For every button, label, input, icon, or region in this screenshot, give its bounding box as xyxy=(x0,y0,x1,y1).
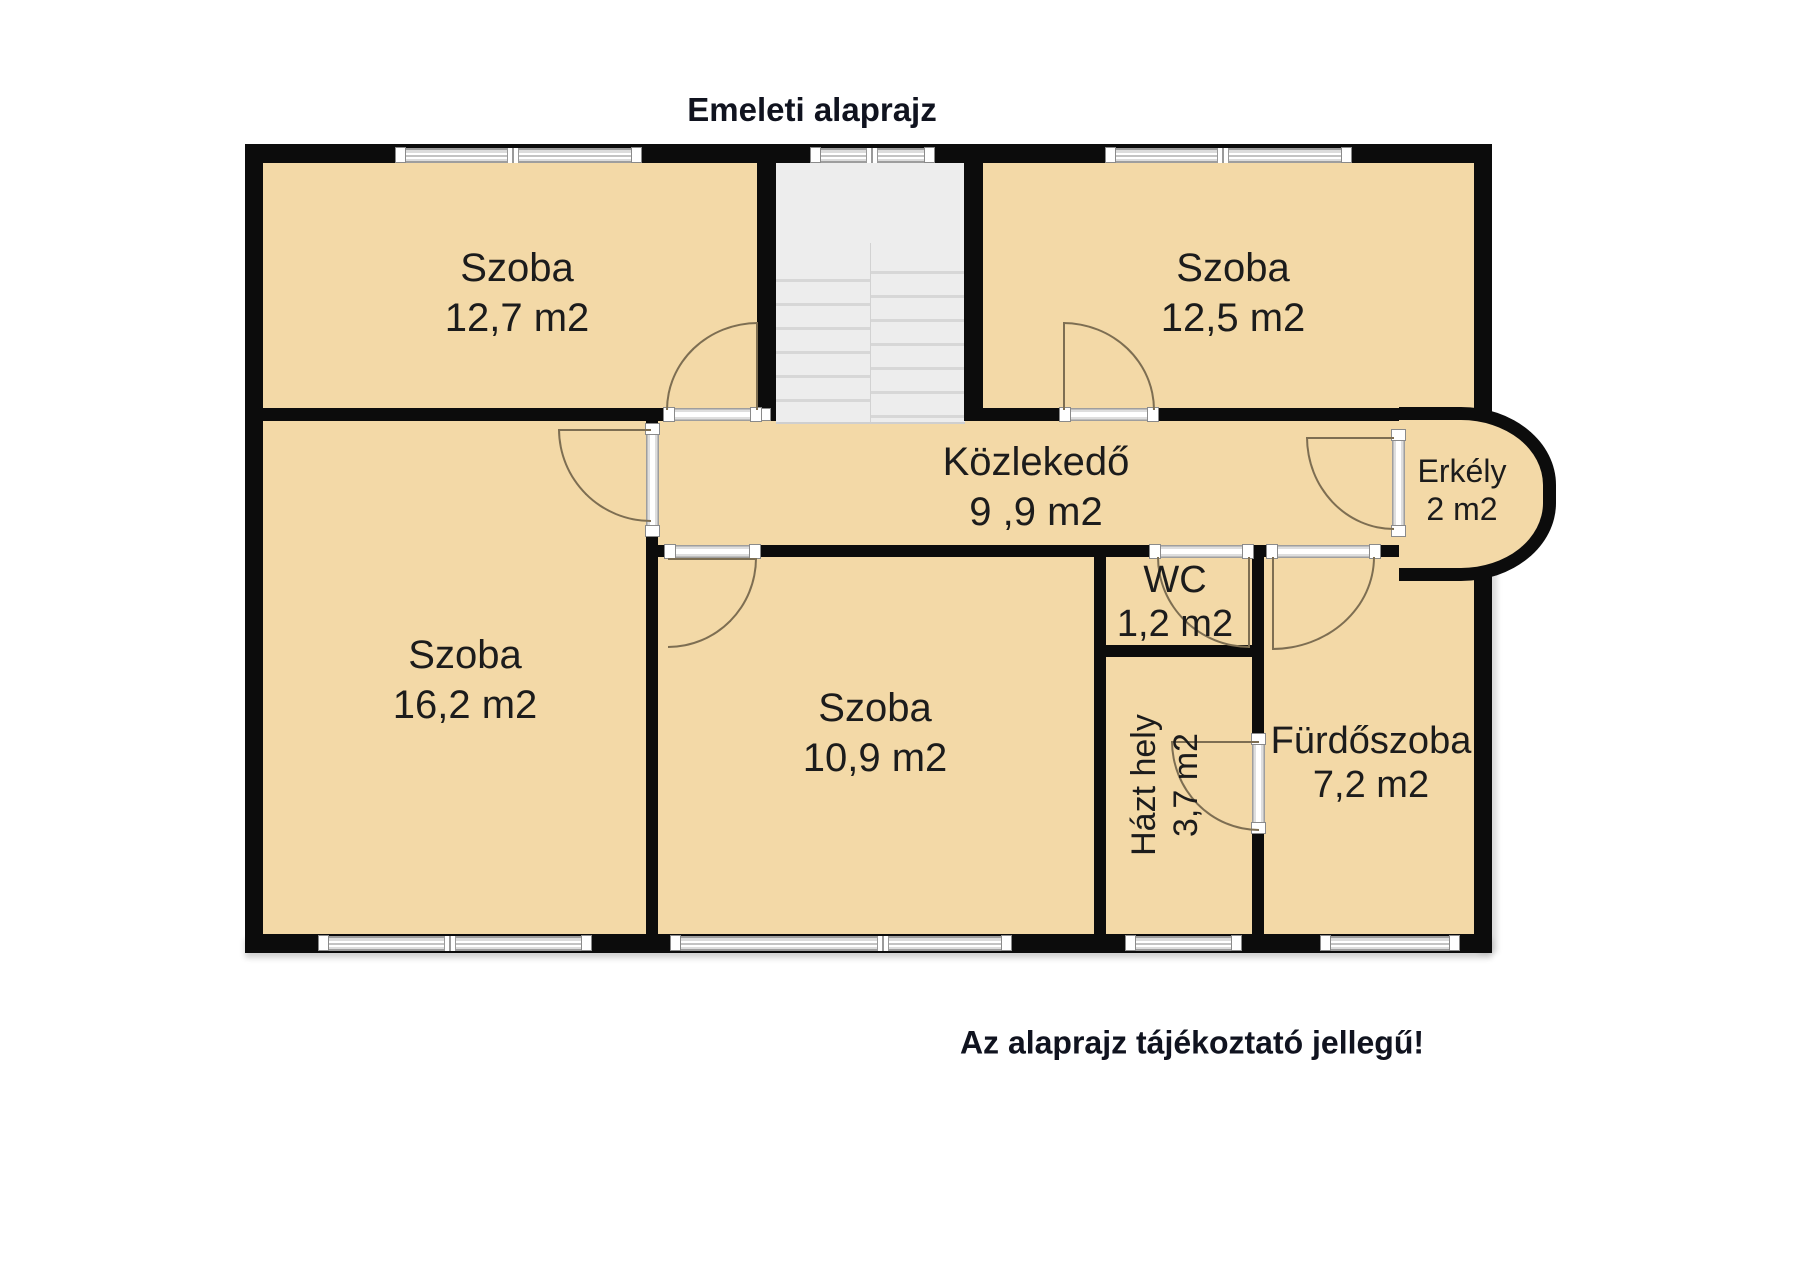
wall-h2b xyxy=(1155,408,1400,421)
room-label-szoba-162: Szoba 16,2 m2 xyxy=(393,630,538,730)
window-tick xyxy=(507,148,519,163)
window-tick xyxy=(1217,148,1229,163)
wall-h2a xyxy=(975,408,1063,421)
room-label-szoba-109: Szoba 10,9 m2 xyxy=(803,683,948,783)
room-area: 12,5 m2 xyxy=(1161,293,1306,343)
room-name: Közlekedő xyxy=(943,437,1130,487)
disclaimer-text: Az alaprajz tájékoztató jellegű! xyxy=(960,1025,1424,1062)
window-szoba-127 xyxy=(397,148,640,163)
page-title: Emeleti alaprajz xyxy=(687,91,936,129)
room-name: Fürdőszoba xyxy=(1271,719,1472,763)
stair-flight-right xyxy=(871,250,965,422)
window-tick xyxy=(444,936,456,951)
wall-h1 xyxy=(257,408,667,421)
room-name: WC xyxy=(1117,558,1233,602)
door-szoba-109 xyxy=(668,545,757,558)
wall-outer-left xyxy=(245,144,263,953)
wall-v4-lower xyxy=(1252,830,1264,944)
room-area: 16,2 m2 xyxy=(393,680,538,730)
window-furdoszoba xyxy=(1322,936,1458,951)
stair-divider xyxy=(870,243,871,422)
room-name: Szoba xyxy=(803,683,948,733)
room-area: 3,7 m2 xyxy=(1165,714,1207,856)
room-area: 1,2 m2 xyxy=(1117,602,1233,646)
wall-outer-right-upper xyxy=(1474,144,1492,421)
room-name: Szoba xyxy=(1161,243,1306,293)
room-name: Szoba xyxy=(393,630,538,680)
window-szoba-125 xyxy=(1107,148,1350,163)
wall-stair-left xyxy=(757,152,776,421)
room-label-wc: WC 1,2 m2 xyxy=(1117,558,1233,646)
room-label-hazt-hely: Házt hely 3,7 m2 xyxy=(1123,714,1207,856)
wall-outer-right-lower xyxy=(1474,542,1492,953)
room-label-furdoszoba: Fürdőszoba 7,2 m2 xyxy=(1271,719,1472,807)
wall-v5 xyxy=(1094,545,1106,944)
window-szoba-162 xyxy=(320,936,590,951)
room-name: Házt hely xyxy=(1123,714,1165,856)
room-label-szoba-127: Szoba 12,7 m2 xyxy=(445,243,590,343)
room-name: Szoba xyxy=(445,243,590,293)
wall-v3-lower xyxy=(646,533,658,944)
window-hazt-hely xyxy=(1127,936,1240,951)
window-tick xyxy=(877,936,889,951)
stair-flight-left xyxy=(776,258,870,422)
room-area: 12,7 m2 xyxy=(445,293,590,343)
room-area: 2 m2 xyxy=(1418,490,1507,528)
room-area: 9 ,9 m2 xyxy=(943,487,1130,537)
room-label-erkely: Erkély 2 m2 xyxy=(1418,452,1507,528)
wall-stair-right xyxy=(964,152,983,421)
room-label-szoba-125: Szoba 12,5 m2 xyxy=(1161,243,1306,343)
room-name: Erkély xyxy=(1418,452,1507,490)
window-szoba-109 xyxy=(672,936,1010,951)
room-area: 10,9 m2 xyxy=(803,733,948,783)
room-label-kozlekedo: Közlekedő 9 ,9 m2 xyxy=(943,437,1130,537)
window-staircase xyxy=(812,148,933,163)
window-tick xyxy=(866,148,878,163)
room-area: 7,2 m2 xyxy=(1271,763,1472,807)
staircase xyxy=(776,158,965,424)
wall-v4-upper xyxy=(1252,545,1264,737)
